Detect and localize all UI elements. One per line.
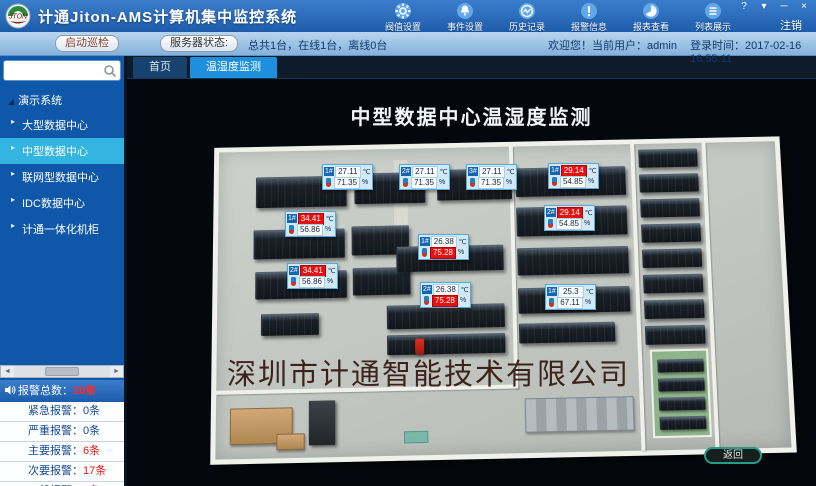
sensor-humidity-row: 75.28%	[422, 295, 469, 306]
chevron-right-icon[interactable]: ▸	[11, 143, 15, 152]
server-rack-row	[640, 198, 700, 217]
server-rack-row	[657, 359, 704, 373]
login-time-text: 登录时间：2017-02-16 16:55:11	[690, 37, 816, 65]
toolbar-button-label: 报表查看	[620, 20, 682, 33]
tree-expand-icon[interactable]: ◢	[8, 97, 14, 106]
sensor-humidity-row: 67.11%	[547, 297, 594, 308]
sensor-humidity-value: 54.85	[560, 176, 586, 188]
alarm-total-row[interactable]: 报警总数：26条	[0, 380, 124, 402]
server-rack-row	[658, 378, 705, 392]
toolbar-button-list[interactable]: 列表展示	[682, 2, 744, 33]
thermometer-icon	[289, 225, 294, 234]
alarm-row-value: 17条	[83, 465, 106, 477]
tree-item-label: 联网型数据中心	[22, 172, 99, 184]
tree-item-label: 计通一体化机柜	[22, 224, 99, 236]
sensor-humidity-row: 54.85%	[546, 218, 593, 229]
toolbar-icons: 阀值设置事件设置历史记录报警信息报表查看列表展示	[372, 2, 744, 33]
sensor-temp-unit: ℃	[589, 167, 597, 175]
search-box	[3, 60, 121, 81]
alarm-row[interactable]: 一般报警：3条	[0, 482, 124, 486]
sensor-temp-row: 3#27.11℃	[468, 166, 515, 177]
status-bar: 启动巡检 服务器状态: 总共1台，在线1台，离线0台 欢迎您！当前用户：admi…	[0, 32, 816, 56]
sensor-label[interactable]: 1#34.41℃56.86%	[285, 211, 336, 237]
sensor-id-badge: 2#	[401, 167, 411, 176]
office-desk	[276, 433, 304, 450]
sensor-humidity-value: 67.11	[557, 297, 583, 309]
scrollbar-thumb[interactable]	[45, 367, 79, 376]
sensor-id-badge: 2#	[422, 285, 432, 294]
tree-root-label: 演示系统	[18, 95, 62, 107]
server-rack-row	[659, 416, 706, 430]
server-rack-row	[642, 248, 702, 268]
sensor-temp-row: 1#34.41℃	[287, 213, 334, 224]
alarm-total-label: 报警总数：	[18, 385, 73, 397]
speaker-icon	[4, 385, 16, 395]
logo-text: JTON	[8, 14, 28, 21]
sensor-humidity-unit: %	[506, 179, 512, 186]
app-logo-icon: JTON	[5, 3, 31, 29]
sensor-id-badge: 1#	[420, 237, 430, 246]
chevron-right-icon[interactable]: ▸	[11, 117, 15, 126]
alarm-row-label: 严重报警：	[28, 425, 83, 437]
sensor-temp-row: 2#34.41℃	[289, 265, 336, 276]
alert-icon[interactable]	[580, 2, 598, 20]
server-rack-row	[261, 313, 319, 336]
sensor-label[interactable]: 2#27.11℃71.35%	[399, 164, 450, 190]
alarm-row-label: 紧急报警：	[28, 405, 83, 417]
alarm-rows: 紧急报警：0条严重报警：0条主要报警：6条次要报警：17条一般报警：3条	[0, 402, 124, 486]
logout-button[interactable]: 注销	[780, 17, 802, 33]
sensor-temp-unit: ℃	[363, 168, 371, 176]
help-icon[interactable]: ?	[738, 1, 750, 12]
sensor-label[interactable]: 1#25.3℃67.11%	[545, 284, 596, 310]
sidebar-item-中型数据中心[interactable]: ▸中型数据中心	[0, 138, 124, 164]
sensor-temp-unit: ℃	[440, 168, 448, 176]
sidebar-horizontal-scrollbar[interactable]: ◄ ►	[0, 365, 124, 378]
sensor-humidity-value: 56.86	[297, 224, 323, 236]
thermometer-icon	[549, 298, 554, 307]
toolbar-button-label: 历史记录	[496, 20, 558, 33]
server-rack-row	[643, 274, 703, 294]
app-title: 计通Jiton-AMS计算机集中监控系统	[38, 6, 297, 27]
server-rack-row	[517, 246, 629, 276]
search-input[interactable]	[6, 62, 102, 79]
server-rack-row	[659, 397, 706, 411]
sidebar: ◢演示系统 ▸大型数据中心▸中型数据中心▸联网型数据中心▸IDC数据中心▸计通一…	[0, 56, 127, 486]
chevron-right-icon[interactable]: ▸	[11, 195, 15, 204]
thermometer-icon	[548, 219, 553, 228]
tree-item-label: 中型数据中心	[22, 146, 88, 158]
sensor-humidity-unit: %	[325, 226, 331, 233]
report-icon[interactable]	[642, 2, 660, 20]
alarm-row[interactable]: 紧急报警：0条	[0, 402, 124, 422]
toolbar-button-bell[interactable]: 事件设置	[434, 2, 496, 33]
sensor-id-badge: 1#	[547, 287, 557, 296]
thermometer-icon	[470, 178, 475, 187]
sidebar-item-大型数据中心[interactable]: ▸大型数据中心	[0, 112, 124, 138]
tree-root-demo-system[interactable]: ◢演示系统	[0, 88, 124, 112]
sensor-temp-unit: ℃	[461, 286, 469, 294]
sensor-humidity-row: 56.86%	[287, 224, 334, 235]
sensor-humidity-value: 71.35	[334, 177, 360, 189]
list-icon[interactable]	[704, 2, 722, 20]
sensor-label[interactable]: 2#26.38℃75.28%	[420, 282, 471, 308]
cabinet	[309, 400, 335, 445]
alarm-row-value: 0条	[83, 425, 100, 437]
sensor-temp-unit: ℃	[585, 209, 593, 217]
sensor-temp-unit: ℃	[586, 288, 594, 296]
chevron-right-icon[interactable]: ▸	[11, 221, 15, 230]
sensor-humidity-unit: %	[585, 299, 591, 306]
server-rack-row	[639, 173, 699, 192]
sensor-humidity-unit: %	[584, 220, 590, 227]
sensor-temp-unit: ℃	[459, 238, 467, 246]
close-icon[interactable]: ×	[798, 1, 810, 12]
sensor-label[interactable]: 1#27.11℃71.35%	[322, 164, 373, 190]
sensor-temp-row: 2#29.14℃	[546, 207, 593, 218]
server-rack-row	[645, 325, 706, 345]
sensor-id-badge: 1#	[324, 167, 334, 176]
thermometer-icon	[326, 178, 331, 187]
tree-item-label: 大型数据中心	[22, 120, 88, 132]
sensor-humidity-value: 56.86	[299, 276, 325, 288]
sensor-temp-row: 1#25.3℃	[547, 286, 594, 297]
toolbar-button-alert[interactable]: 报警信息	[558, 2, 620, 33]
sensor-label[interactable]: 2#34.41℃56.86%	[287, 263, 338, 289]
sensor-temp-row: 2#27.11℃	[401, 166, 448, 177]
server-rack-row	[644, 299, 705, 319]
tree-item-label: IDC数据中心	[22, 198, 85, 210]
sensor-humidity-row: 71.35%	[324, 177, 371, 188]
sensor-humidity-row: 71.35%	[468, 177, 515, 188]
alarm-row[interactable]: 次要报警：17条	[0, 462, 124, 482]
sensor-temp-row: 2#26.38℃	[422, 284, 469, 295]
thermometer-icon	[424, 296, 429, 305]
alarm-row[interactable]: 主要报警：6条	[0, 442, 124, 462]
sensor-humidity-value: 75.28	[430, 247, 456, 259]
sidebar-item-联网型数据中心[interactable]: ▸联网型数据中心	[0, 164, 124, 190]
alarm-row[interactable]: 严重报警：0条	[0, 422, 124, 442]
server-status-text: 总共1台，在线1台，离线0台	[248, 37, 387, 53]
sensor-id-badge: 2#	[546, 208, 556, 217]
sensor-temp-row: 1#27.11℃	[324, 166, 371, 177]
welcome-text: 欢迎您！当前用户：admin	[548, 37, 677, 53]
sensor-humidity-value: 75.28	[432, 295, 458, 307]
sensor-humidity-row: 71.35%	[401, 177, 448, 188]
chevron-right-icon[interactable]: ▸	[11, 169, 15, 178]
thermometer-icon	[403, 178, 408, 187]
map-content: 中型数据中心温湿度监测	[127, 79, 816, 486]
tab-首页[interactable]: 首页	[133, 57, 187, 78]
sensor-temp-unit: ℃	[328, 267, 336, 275]
toolbar-button-label: 阀值设置	[372, 20, 434, 33]
start-patrol-button[interactable]: 启动巡检	[55, 35, 119, 52]
sensor-humidity-row: 75.28%	[420, 247, 467, 258]
minimize-icon[interactable]: ─	[778, 1, 790, 12]
sensor-humidity-unit: %	[362, 179, 368, 186]
toolbar-button-label: 列表展示	[682, 20, 744, 33]
sensor-humidity-value: 71.35	[411, 177, 437, 189]
server-status-button[interactable]: 服务器状态:	[160, 35, 238, 52]
toolbar-button-history[interactable]: 历史记录	[496, 2, 558, 33]
history-icon[interactable]	[518, 2, 536, 20]
toolbar-button-gear[interactable]: 阀值设置	[372, 2, 434, 33]
sensor-humidity-unit: %	[439, 179, 445, 186]
sensor-humidity-row: 56.86%	[289, 276, 336, 287]
sidebar-item-IDC数据中心[interactable]: ▸IDC数据中心	[0, 190, 124, 216]
sensor-label[interactable]: 3#27.11℃71.35%	[466, 164, 517, 190]
main-area: 首页温湿度监测 中型数据中心温湿度监测	[127, 56, 816, 486]
alarm-summary-panel: 报警总数：26条 紧急报警：0条严重报警：0条主要报警：6条次要报警：17条一般…	[0, 380, 124, 486]
alarm-row-value: 0条	[83, 405, 100, 417]
bell-icon[interactable]	[456, 2, 474, 20]
toolbar-button-label: 报警信息	[558, 20, 620, 33]
window-controls: ?▾─×	[738, 1, 810, 12]
scroll-left-arrow-icon[interactable]: ◄	[1, 366, 14, 377]
sensor-humidity-unit: %	[460, 297, 466, 304]
sensor-humidity-value: 71.35	[478, 177, 504, 189]
sensor-id-badge: 3#	[468, 167, 478, 176]
back-button[interactable]: 返回	[704, 447, 762, 464]
sensor-humidity-unit: %	[588, 178, 594, 185]
thermometer-icon	[291, 277, 296, 286]
gear-icon[interactable]	[394, 2, 412, 20]
search-icon[interactable]	[103, 64, 117, 78]
alarm-row-label: 次要报警：	[28, 465, 83, 477]
sensor-humidity-row: 54.85%	[550, 176, 597, 187]
sensor-label[interactable]: 2#29.14℃54.85%	[544, 205, 595, 231]
sensor-label[interactable]: 1#29.14℃54.85%	[548, 163, 599, 189]
title-bar: JTON 计通Jiton-AMS计算机集中监控系统 阀值设置事件设置历史记录报警…	[0, 0, 816, 32]
alarm-row-value: 6条	[83, 445, 100, 457]
sensor-humidity-value: 54.85	[556, 218, 582, 230]
server-rack-row	[519, 322, 616, 344]
device-tree: ◢演示系统 ▸大型数据中心▸中型数据中心▸联网型数据中心▸IDC数据中心▸计通一…	[0, 88, 124, 242]
server-rack-row	[638, 148, 698, 167]
sensor-humidity-unit: %	[458, 249, 464, 256]
sensor-temp-unit: ℃	[507, 168, 515, 176]
thermometer-icon	[422, 248, 427, 257]
door-mat	[404, 431, 428, 444]
sensor-id-badge: 2#	[289, 266, 299, 275]
sensor-temp-unit: ℃	[326, 215, 334, 223]
server-rack-row	[641, 223, 701, 243]
sensor-temp-row: 1#29.14℃	[550, 165, 597, 176]
sensor-label[interactable]: 1#26.38℃75.28%	[418, 234, 469, 260]
watermark-text: 深圳市计通智能技术有限公司	[227, 351, 647, 393]
sensor-temp-row: 1#26.38℃	[420, 236, 467, 247]
dropdown-icon[interactable]: ▾	[758, 1, 770, 12]
tree-children: ▸大型数据中心▸中型数据中心▸联网型数据中心▸IDC数据中心▸计通一体化机柜	[0, 112, 124, 242]
power-panel-strip	[525, 396, 635, 433]
alarm-total-value: 26条	[73, 385, 96, 397]
sensor-id-badge: 1#	[287, 214, 297, 223]
thermometer-icon	[552, 177, 557, 186]
toolbar-button-label: 事件设置	[434, 20, 496, 33]
sensor-humidity-unit: %	[327, 278, 333, 285]
sidebar-item-计通一体化机柜[interactable]: ▸计通一体化机柜	[0, 216, 124, 242]
green-room	[650, 349, 712, 439]
alarm-row-label: 主要报警：	[28, 445, 83, 457]
sensor-id-badge: 1#	[550, 166, 560, 175]
page-title: 中型数据中心温湿度监测	[127, 101, 816, 130]
scroll-right-arrow-icon[interactable]: ►	[110, 366, 123, 377]
tab-温湿度监测[interactable]: 温湿度监测	[190, 57, 277, 78]
toolbar-button-report[interactable]: 报表查看	[620, 2, 682, 33]
